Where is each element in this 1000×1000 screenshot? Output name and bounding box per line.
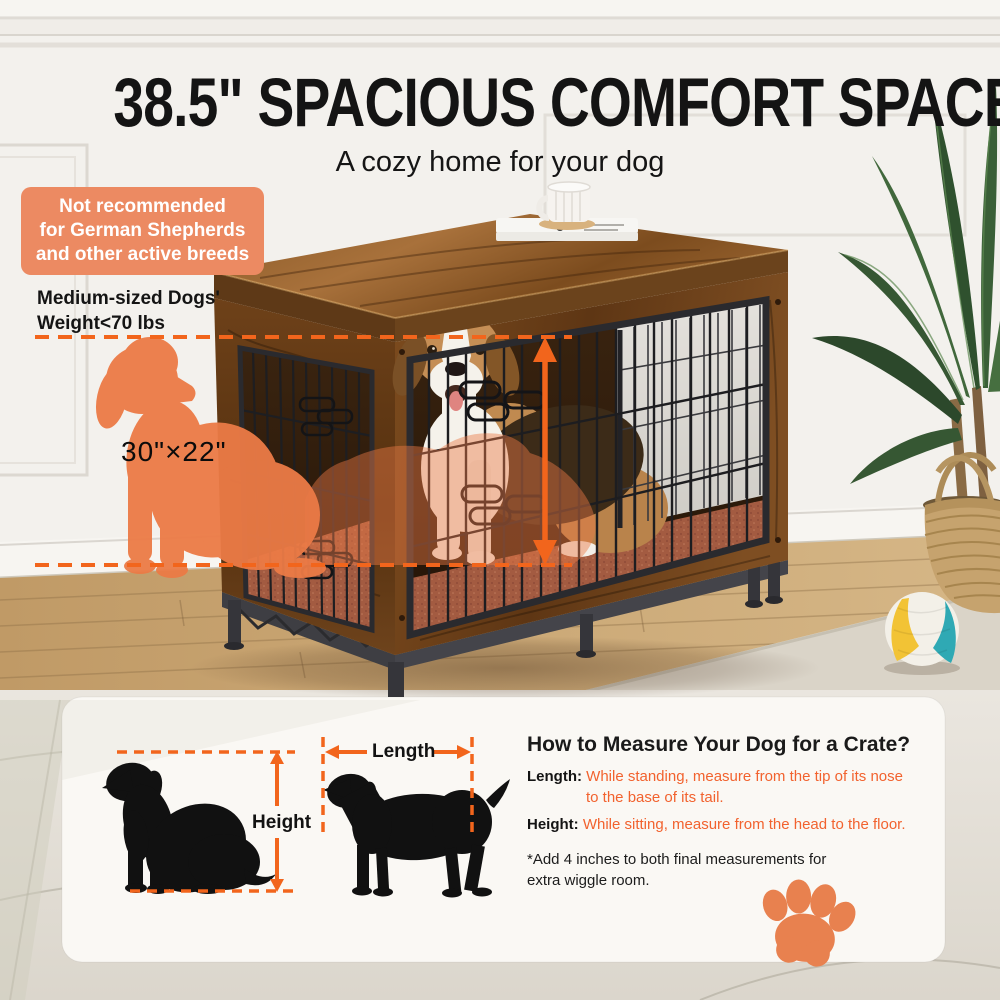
measure-panel-title: How to Measure Your Dog for a Crate?	[527, 733, 910, 757]
length-dimension-label: Length	[372, 741, 435, 763]
length-instruction: Length: While standing, measure from the…	[527, 768, 903, 785]
warning-badge-line: and other active breeds	[23, 243, 262, 267]
page-subtitle: A cozy home for your dog	[0, 146, 1000, 179]
height-instruction: Height: While sitting, measure from the …	[527, 816, 906, 833]
warning-badge-line: for German Shepherds	[23, 219, 262, 243]
warning-badge: Not recommended for German Shepherds and…	[21, 187, 264, 275]
product-infographic: 38.5" SPACIOUS COMFORT SPACE A cozy home…	[0, 0, 1000, 1000]
height-dimension-label: Height	[252, 812, 311, 834]
measurement-note: *Add 4 inches to both final measurements…	[527, 851, 826, 868]
length-instruction-cont: to the base of its tail.	[586, 789, 724, 806]
door-size-label: 30"×22"	[121, 436, 227, 468]
weight-note: Medium-sized Dogs' Weight<70 lbs	[37, 286, 220, 336]
page-title: 38.5" SPACIOUS COMFORT SPACE	[0, 68, 1000, 137]
floor-shadow	[190, 636, 820, 700]
measurement-note-cont: extra wiggle room.	[527, 872, 650, 889]
warning-badge-line: Not recommended	[23, 195, 262, 219]
